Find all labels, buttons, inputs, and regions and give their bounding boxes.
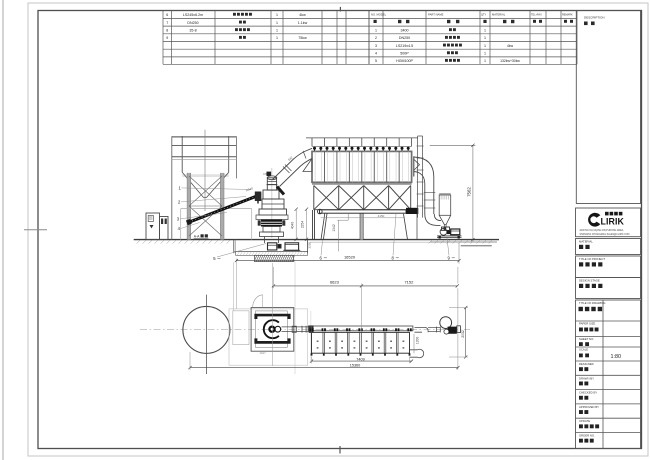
svg-text:QTY: QTY (481, 14, 486, 17)
svg-text:REMARK: REMARK (562, 14, 573, 17)
svg-text:DRAWN BY: DRAWN BY (579, 376, 594, 380)
svg-text:7562: 7562 (466, 187, 471, 197)
svg-text:2: 2 (375, 36, 377, 40)
svg-text:5: 5 (375, 59, 377, 63)
svg-text:8: 8 (166, 28, 168, 32)
svg-text:PART NAME: PART NAME (428, 13, 444, 17)
svg-text:1917: 1917 (260, 351, 267, 355)
svg-text:9: 9 (166, 36, 168, 40)
svg-text:MATERIAL: MATERIAL (579, 240, 593, 244)
svg-text:1: 1 (484, 52, 486, 56)
svg-text:ORDER NO.: ORDER NO. (579, 434, 595, 438)
svg-text:DESCRIPTION: DESCRIPTION (584, 15, 605, 19)
svg-text:1: 1 (276, 21, 278, 25)
svg-text:1: 1 (484, 59, 486, 63)
svg-text:4kw: 4kw (507, 44, 514, 48)
svg-text:CHECKED BY: CHECKED BY (579, 391, 597, 395)
svg-text:1: 1 (375, 28, 377, 32)
svg-text:1: 1 (276, 13, 278, 17)
svg-text:1342: 1342 (332, 224, 336, 232)
svg-text:3400: 3400 (401, 28, 409, 32)
svg-text:MATERIAL: MATERIAL (492, 13, 506, 17)
svg-text:4: 4 (375, 52, 377, 56)
svg-text:HGM100P: HGM100P (396, 59, 413, 63)
svg-text:TEL+FAX: TEL+FAX (531, 14, 542, 17)
svg-text:SHEET NO.: SHEET NO. (579, 337, 594, 341)
svg-text:35-8: 35-8 (189, 28, 196, 32)
svg-text:UPDATE: UPDATE (579, 419, 590, 423)
svg-text:1: 1 (484, 28, 486, 32)
svg-text:1: 1 (484, 36, 486, 40)
svg-text:4kw: 4kw (299, 13, 306, 17)
svg-text:2032: 2032 (461, 330, 465, 338)
svg-text:3: 3 (375, 44, 377, 48)
svg-text:LS245x6.2m: LS245x6.2m (183, 13, 203, 17)
svg-text:TITLE OF DRAWING: TITLE OF DRAWING (579, 301, 605, 305)
svg-text:132kw+30kw: 132kw+30kw (500, 59, 520, 63)
svg-text:DN250: DN250 (399, 36, 410, 40)
svg-text:ADD:NO.19,FUQING RD,PUDONG ARE: ADD:NO.19,FUQING RD,PUDONG AREA, (580, 229, 625, 232)
svg-text:APPROVED BY: APPROVED BY (579, 405, 599, 409)
svg-text:1: 1 (484, 44, 486, 48)
svg-text:SHANGHAI CHINA EMAIL:SALES@CLI: SHANGHAI CHINA EMAIL:SALES@CLIRIK.COM (580, 233, 630, 236)
svg-text:500P: 500P (400, 52, 409, 56)
svg-text:7: 7 (166, 21, 168, 25)
svg-text:75kw: 75kw (298, 36, 307, 40)
svg-text:DESIGN STAGE: DESIGN STAGE (579, 279, 600, 283)
svg-text:4040: 4040 (290, 222, 294, 230)
svg-text:LS219x4.5: LS219x4.5 (396, 44, 413, 48)
svg-text:7409: 7409 (356, 357, 364, 361)
svg-text:LIRIK: LIRIK (601, 216, 625, 226)
svg-text:6623: 6623 (330, 280, 340, 285)
svg-text:TITLE OF PROJECT: TITLE OF PROJECT (579, 257, 605, 261)
svg-text:4150: 4150 (378, 214, 385, 218)
svg-text:16520: 16520 (344, 254, 356, 259)
svg-text:1.1kw: 1.1kw (298, 21, 308, 25)
svg-text:NO. MODEL: NO. MODEL (371, 13, 387, 17)
svg-text:A-A: A-A (194, 235, 200, 239)
svg-text:2254: 2254 (301, 221, 305, 229)
svg-text:SCALE: SCALE (579, 348, 588, 352)
svg-text:1:80: 1:80 (611, 354, 622, 360)
svg-text:PAPER SIZE: PAPER SIZE (579, 322, 595, 326)
svg-text:1: 1 (276, 28, 278, 32)
svg-text:DN250: DN250 (187, 21, 198, 25)
svg-text:2230: 2230 (308, 242, 312, 249)
svg-text:1300: 1300 (416, 337, 420, 345)
svg-text:15360: 15360 (350, 364, 361, 368)
svg-text:DESIGNER: DESIGNER (579, 362, 594, 366)
svg-text:6: 6 (166, 13, 168, 17)
svg-text:7152: 7152 (404, 280, 414, 285)
svg-text:1: 1 (276, 36, 278, 40)
